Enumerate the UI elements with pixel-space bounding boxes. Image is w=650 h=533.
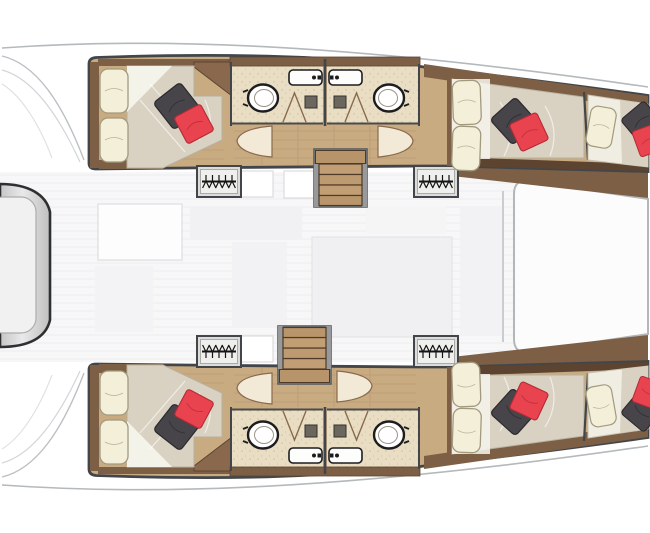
salon-furniture-ghost [95,266,153,332]
salon-furniture-ghost [98,204,182,260]
salon-furniture-ghost [460,206,504,336]
stern-platform [0,184,50,347]
floor-plan-canvas [0,0,650,533]
companionway-stairs-starboard [278,326,331,384]
catamaran-floorplan [0,0,650,533]
foredeck-panel [514,181,648,352]
salon-furniture-ghost [190,207,302,239]
salon-furniture-ghost [366,206,446,234]
salon-table-ghost [312,237,452,337]
stern-sunpad [0,197,36,333]
salon-furniture-ghost [232,242,287,328]
companionway-stairs-port [314,149,367,207]
